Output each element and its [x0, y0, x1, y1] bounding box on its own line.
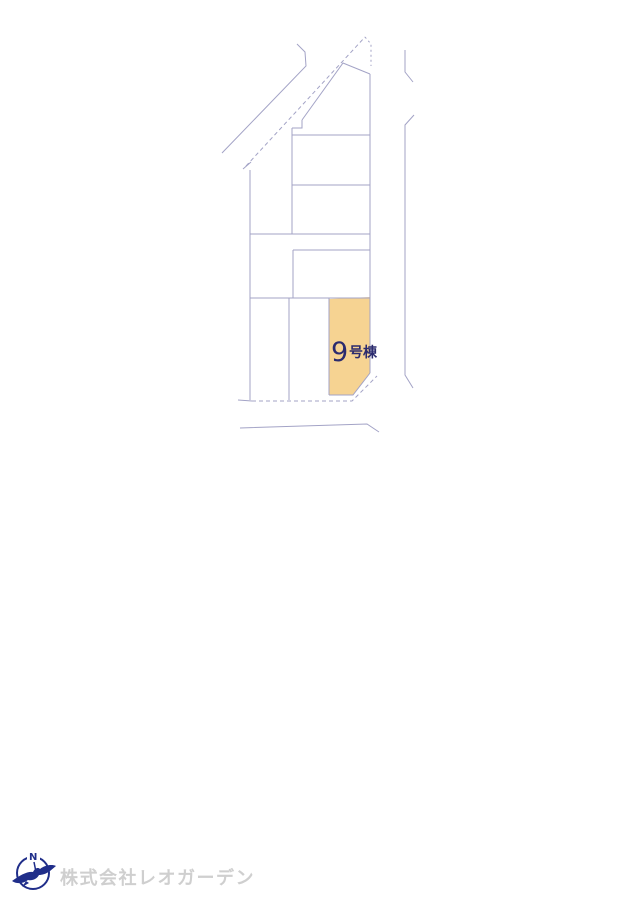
logo-letter-n: N: [29, 852, 37, 863]
road-edge-left: [222, 44, 306, 153]
road-edge-right-lower: [405, 115, 414, 388]
boundary-end-tick: [243, 162, 251, 169]
block-top-notch: [292, 120, 302, 128]
lot-9-suffix: 号棟: [349, 344, 378, 361]
road-edge-right-upper: [405, 50, 413, 82]
company-name: 株式会社レオガーデン: [60, 864, 255, 890]
footer: N 株式会社レオガーデン: [0, 424, 640, 480]
site-plan-image: 9 号棟: [0, 0, 640, 480]
site-plan-svg: 9 号棟: [0, 0, 640, 480]
lot-9-number: 9: [331, 337, 348, 368]
plan-linework: [222, 37, 414, 432]
company-logo: N: [10, 848, 58, 898]
boundary-bottom-solid-tick: [238, 400, 252, 401]
boundary-dotted-apex: [365, 37, 371, 66]
block-topleft-diagonal: [302, 63, 370, 120]
